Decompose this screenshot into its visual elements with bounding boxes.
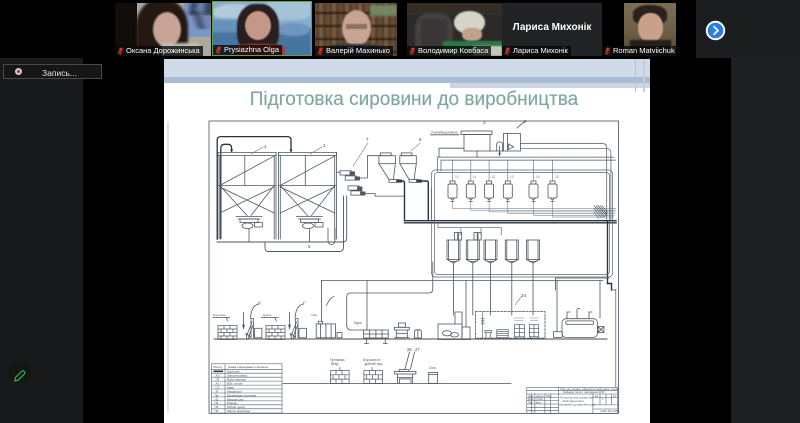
svg-text:Борошно: Борошно [213, 313, 226, 317]
svg-text:П6: П6 [215, 409, 219, 413]
svg-text:1: 1 [323, 143, 326, 148]
svg-text:10: 10 [455, 175, 459, 179]
svg-text:15: 15 [555, 175, 559, 179]
svg-text:СНАУ 181.СМЖ: СНАУ 181.СМЖ [600, 409, 620, 413]
svg-text:Підп.: Підп. [546, 394, 552, 398]
svg-text:7: 7 [366, 137, 369, 142]
svg-text:Мука: Мука [354, 321, 362, 325]
svg-text:1: 1 [264, 144, 267, 149]
svg-text:Розр.: Розр. [528, 397, 535, 401]
svg-text:2: 2 [524, 119, 527, 124]
svg-text:24: 24 [521, 293, 527, 298]
svg-text:8: 8 [419, 137, 422, 142]
svg-text:26: 26 [407, 347, 412, 352]
svg-text:Масло вершкове: Масло вершкове [227, 409, 251, 413]
svg-text:Пов.: Пов. [312, 313, 318, 317]
svg-text:Цукор: Цукор [263, 313, 272, 317]
svg-text:5: 5 [308, 244, 311, 249]
svg-text:27: 27 [415, 347, 420, 352]
svg-text:16: 16 [258, 301, 262, 305]
svg-text:Кафедра технол. харчування 202: Кафедра технол. харчування 2020 [563, 390, 605, 394]
svg-text:Пер.: Пер. [528, 400, 534, 404]
svg-text:Позиц.: Позиц. [213, 365, 223, 369]
svg-text:ВМД: ВМД [331, 362, 339, 366]
svg-text:Мих.: Мих. [536, 400, 542, 404]
svg-text:Стеф.: Стеф. [536, 397, 544, 401]
svg-text:12: 12 [492, 175, 496, 179]
svg-text:14: 14 [536, 175, 540, 179]
svg-text:Сіль: Сіль [429, 366, 436, 370]
svg-text:З кондиціонера: З кондиціонера [431, 131, 458, 135]
svg-text:1:1: 1:1 [613, 394, 617, 398]
svg-text:11: 11 [473, 175, 477, 179]
svg-text:17: 17 [303, 301, 307, 305]
svg-text:сировини до виробництва: сировини до виробництва [559, 403, 596, 407]
svg-text:13: 13 [510, 175, 514, 179]
svg-text:дрібній тарі: дрібній тарі [365, 362, 383, 366]
svg-text:Назва одержуваної сировини: Назва одержуваної сировини [228, 365, 269, 369]
